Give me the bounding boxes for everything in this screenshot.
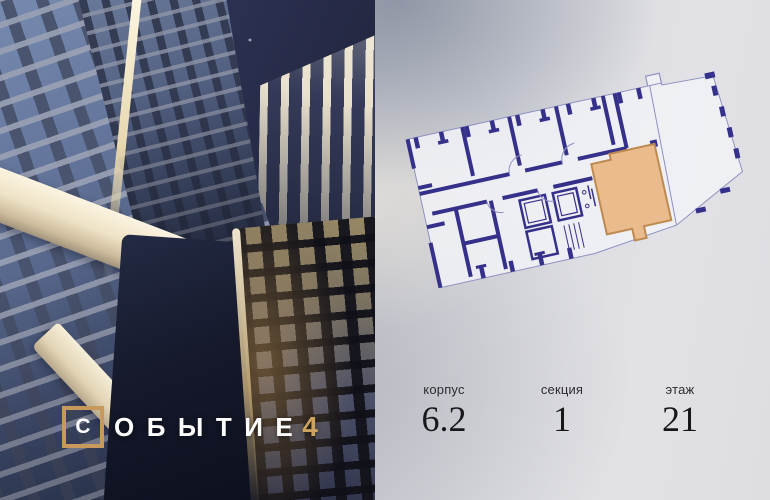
page: С ОБЫТИЕ 4 (0, 0, 770, 500)
etazh-label: этаж (621, 382, 739, 397)
korpus-label: корпус (385, 382, 503, 397)
korpus-value: 6.2 (385, 401, 503, 437)
logo-wordmark: ОБЫТИЕ (114, 412, 305, 443)
hero-photo: С ОБЫТИЕ 4 (0, 0, 375, 500)
info-cell-sektsiya: секция 1 (503, 382, 621, 437)
logo-project-number: 4 (302, 411, 318, 443)
etazh-value: 21 (621, 401, 739, 437)
apartment-panel: корпус 6.2 секция 1 этаж 21 (375, 0, 770, 500)
floor-plan (375, 0, 770, 370)
info-cell-etazh: этаж 21 (621, 382, 739, 437)
logo-square-icon: С (62, 406, 104, 448)
brand-logo: С ОБЫТИЕ 4 (62, 406, 318, 448)
sektsiya-label: секция (503, 382, 621, 397)
logo-boxed-letter: С (75, 415, 90, 439)
info-cell-korpus: корпус 6.2 (385, 382, 503, 437)
apartment-info-row: корпус 6.2 секция 1 этаж 21 (385, 382, 739, 437)
sektsiya-value: 1 (503, 401, 621, 437)
floor-plan-outline (405, 60, 752, 287)
